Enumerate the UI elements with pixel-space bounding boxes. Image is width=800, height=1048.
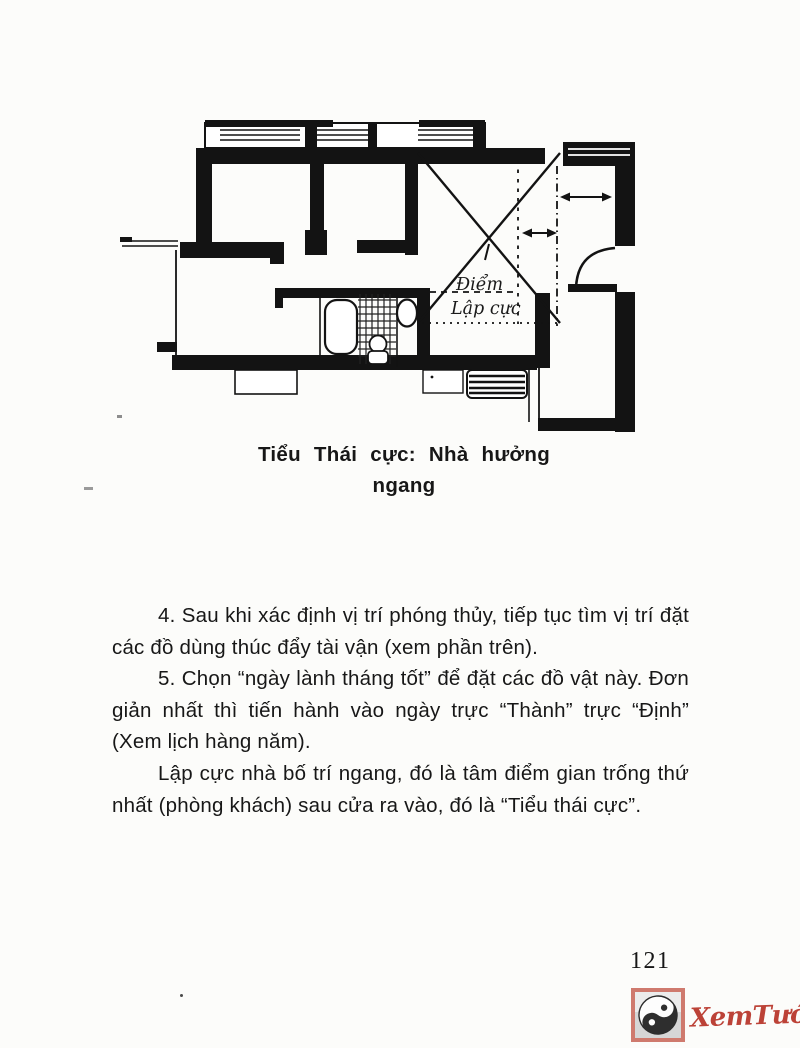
paragraph-4: 4. Sau khi xác định vị trí phóng thủy, t… [112,600,689,663]
figure-caption-line1: Tiểu Thái cực: Nhà hưởng [0,439,800,470]
plan-label-line2: Lập cực [450,299,521,319]
floor-plan-figure: Điểm Lập cực [120,100,650,440]
door-arc [576,248,615,288]
plan-label-line1: Điểm [455,275,503,295]
label-pointer [485,244,489,260]
paragraph-lap-cuc: Lập cực nhà bố trí ngang, đó là tâm điểm… [112,758,689,821]
floor-plan-walls [120,120,635,432]
sink-icon [397,300,417,327]
scan-speck [117,415,122,418]
yin-yang-icon [631,988,685,1042]
figure-caption-line2: ngang [0,470,800,501]
scanned-book-page: Điểm Lập cực Tiểu Thái cực: Nhà hưởng ng… [0,0,800,1048]
figure-caption: Tiểu Thái cực: Nhà hưởng ngang [0,439,800,501]
paragraph-5: 5. Chọn “ngày lành tháng tốt” để đặt các… [112,663,689,758]
body-text: 4. Sau khi xác định vị trí phóng thủy, t… [112,600,689,821]
bathtub-icon [325,300,357,354]
measure-arrows [522,193,612,238]
scan-speck [84,487,93,490]
watermark: XemTướng.net [631,988,800,1042]
page-number: 121 [630,948,671,975]
watermark-text: XemTướng.net [690,996,800,1033]
diagonal-cross [418,153,560,323]
toilet-icon [370,336,387,353]
scan-speck [180,994,183,997]
